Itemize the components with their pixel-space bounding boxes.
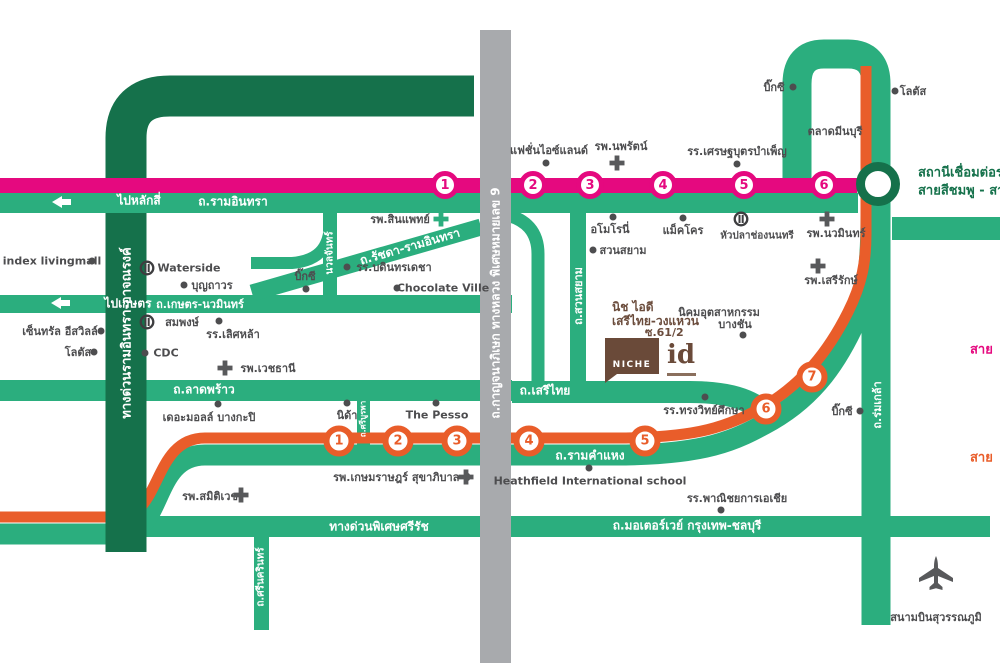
road-label-sri-burapha: ถ.ศรีบูรพา xyxy=(357,401,370,437)
poi-marker-dot xyxy=(303,286,310,293)
poi-label-lotus-left: โลตัส xyxy=(65,343,92,361)
poi-label-heathfield: Heathfield International school xyxy=(494,475,687,488)
pink-line-station-4: 4 xyxy=(649,171,677,199)
niche-logo: NICHE xyxy=(605,338,659,374)
poi-marker-dot xyxy=(216,318,223,325)
poi-label-setthabut-school: รร.เศรษฐบุตรบำเพ็ญ xyxy=(687,142,787,160)
poi-label-the-mall-bangkapi: เดอะมอลล์ บางกะปิ xyxy=(163,408,256,426)
poi-marker-dot xyxy=(586,465,593,472)
orange-line-station-6: 6 xyxy=(751,394,782,425)
poi-marker-dot xyxy=(740,332,747,339)
poi-marker-dot xyxy=(433,400,440,407)
road-label-sirat: ทางด่วนพิเศษศรีรัช xyxy=(329,518,428,537)
road-label-kanchanaphisek: ถ.กาญจนาภิเษก ทางหลวง พิเศษหมายเลข 9 xyxy=(487,187,506,418)
poi-label-vejthani-hospital: รพ.เวชธานี xyxy=(240,359,295,377)
interchange-note-line2: สายสีชมพู - สาย xyxy=(918,180,1000,201)
poi-label-bigc-bottom: บิ๊กซี xyxy=(831,402,852,420)
pink-line-station-1: 1 xyxy=(431,171,459,199)
road-label-romklao: ถ.ร่มเกล้า xyxy=(868,381,886,428)
orange-line-station-5: 5 xyxy=(630,426,661,457)
road-label-suan-siam: ถ.สวนสยาม xyxy=(569,267,587,325)
storefront-icon xyxy=(734,212,749,227)
station-number: 4 xyxy=(524,435,533,448)
poi-marker-dot xyxy=(98,328,105,335)
left-arrow-icon xyxy=(51,297,71,309)
station-number: 2 xyxy=(528,179,537,192)
poi-label-nawamin-hospital: รพ.นวมินทร์ xyxy=(807,224,866,242)
orange-line-station-2: 2 xyxy=(383,426,414,457)
road-label-serithai: ถ.เสรีไทย xyxy=(520,382,571,401)
road-label-nuanchan: นวลจันทร์ xyxy=(323,231,338,274)
poi-label-sompong: สมพงษ์ xyxy=(165,313,199,331)
station-number: 5 xyxy=(640,435,649,448)
poi-label-nida: นิด้า xyxy=(337,406,358,424)
poi-label-bangchan-line2: บางชัน xyxy=(718,315,752,333)
station-number: 3 xyxy=(452,435,461,448)
poi-label-songwit-school: รร.ทรงวิทย์ศึกษา xyxy=(663,401,744,419)
poi-label-waterside: Waterside xyxy=(158,262,221,275)
station-number: 2 xyxy=(393,435,402,448)
poi-marker-dot xyxy=(702,394,709,401)
poi-label-lotus-top: โลตัส xyxy=(900,82,927,100)
pink-line-station-3: 3 xyxy=(576,171,604,199)
interchange-station-circle xyxy=(856,162,900,206)
airplane-icon xyxy=(916,553,956,593)
orange-line-station-1: 1 xyxy=(324,426,355,457)
location-map: ไปหลักสี่ ถ.รามอินทรา ไปเกษตร ถ.เกษตร-นว… xyxy=(0,0,1000,663)
road-label-ramkhamhaeng: ถ.รามคำแหง xyxy=(555,447,624,466)
road-sirat-motorway xyxy=(128,516,990,537)
storefront-icon xyxy=(140,261,155,276)
station-number: 4 xyxy=(658,179,667,192)
orange-line-name-label: สาย xyxy=(970,447,993,468)
poi-label-sinphaet-hospital: รพ.สินแพทย์ xyxy=(370,210,430,228)
road-label-kaset-nawamin: ถ.เกษตร-นวมินทร์ xyxy=(156,295,244,313)
road-ladprao xyxy=(0,380,512,401)
poi-label-minburi-market: ตลาดมีนบุรี xyxy=(808,122,863,140)
poi-label-suan-siam: สวนสยาม xyxy=(600,241,647,259)
id-logo-tagline xyxy=(667,373,696,376)
poi-label-suvarnabhumi-airport: สนามบินสุวรรณภูมิ xyxy=(890,608,982,626)
pink-line-station-5: 5 xyxy=(730,171,758,199)
poi-marker-dot xyxy=(718,507,725,514)
poi-label-samitivej-hospital: รพ.สมิติเวช xyxy=(182,487,238,505)
poi-marker-dot xyxy=(543,160,550,167)
poi-label-boonthavorn: บุญถาวร xyxy=(191,276,232,294)
poi-label-nopparat-hospital: รพ.นพรัตน์ xyxy=(595,137,648,155)
road-label-motorway: ถ.มอเตอร์เวย์ กรุงเทพ-ชลบุรี xyxy=(613,517,762,536)
road-label-srinagarindra: ถ.ศรีนครินทร์ xyxy=(254,547,269,606)
orange-line-station-4: 4 xyxy=(514,426,545,457)
poi-marker-dot xyxy=(344,264,351,271)
road-label-ramindra: ถ.รามอินทรา xyxy=(198,193,267,212)
pink-line-name-label: สาย xyxy=(970,339,993,360)
poi-label-panichayakan-asia: รร.พาณิชยการเอเชีย xyxy=(687,489,787,507)
niche-logo-text: NICHE xyxy=(613,360,652,370)
poi-label-cdc: CDC xyxy=(153,347,178,360)
poi-label-central-eastville: เซ็นทรัล อีสวิลล์ xyxy=(22,322,97,340)
poi-marker-dot xyxy=(790,84,797,91)
road-ramindra-east xyxy=(892,217,1000,240)
poi-marker-dot xyxy=(734,161,741,168)
poi-marker-dot xyxy=(590,247,597,254)
pink-line-station-6: 6 xyxy=(810,171,838,199)
niche-logo-tail xyxy=(605,374,617,383)
road-label-ramindra-expressway: ทางด่วนรามอินทรา-อาจณรงค์ xyxy=(116,247,137,418)
station-number: 7 xyxy=(807,371,816,384)
orange-line-station-7: 7 xyxy=(797,362,828,393)
poi-marker-dot xyxy=(91,349,98,356)
poi-label-index-livingmall: index livingmall xyxy=(3,255,101,268)
poi-label-seriruk-hospital: รพ.เสรีรักษ์ xyxy=(804,271,858,289)
poi-label-makro: แม็คโคร xyxy=(663,221,704,239)
poi-label-lertlah-school: รร.เลิศหล้า xyxy=(206,325,260,343)
id-brand-logo: id xyxy=(667,340,695,370)
poi-label-amoroni: อโมโรนี่ xyxy=(590,220,629,238)
poi-label-chocolate-ville: Chocolate Ville xyxy=(397,282,489,295)
poi-marker-dot xyxy=(181,282,188,289)
storefront-icon xyxy=(140,315,155,330)
station-number: 6 xyxy=(761,403,770,416)
road-nuanchan-branch xyxy=(251,222,330,263)
station-number: 1 xyxy=(440,179,449,192)
poi-label-bodindecha-school: รร.บดินทรเดชา xyxy=(356,258,431,276)
orange-line-station-3: 3 xyxy=(442,426,473,457)
left-arrow-icon xyxy=(52,196,72,208)
poi-label-kasemrad-hospital: รพ.เกษมราษฎร์ สุขาภิบาล 3 xyxy=(333,468,471,486)
poi-label-the-pesso: The Pesso xyxy=(406,409,469,422)
station-number: 5 xyxy=(739,179,748,192)
station-number: 6 xyxy=(819,179,828,192)
poi-label-fashion-island: แฟชั่นไอซ์แลนด์ xyxy=(510,141,588,159)
station-number: 1 xyxy=(334,435,343,448)
poi-marker-dot xyxy=(857,408,864,415)
station-number: 3 xyxy=(585,179,594,192)
poi-marker-dot xyxy=(215,401,222,408)
poi-label-bigc-mid: บิ๊กซี xyxy=(294,267,315,285)
pink-line-station-2: 2 xyxy=(519,171,547,199)
poi-marker-dot xyxy=(89,258,96,265)
road-label-ladprao: ถ.ลาดพร้าว xyxy=(173,381,235,400)
poi-marker-dot xyxy=(892,88,899,95)
road-label-to-laksi: ไปหลักสี่ xyxy=(117,192,161,211)
poi-label-bigc-top: บิ๊กซี xyxy=(763,78,784,96)
poi-label-huapla-chongnonsi: หัวปลาช่องนนทรี xyxy=(720,229,794,244)
poi-marker-dot xyxy=(142,350,149,357)
